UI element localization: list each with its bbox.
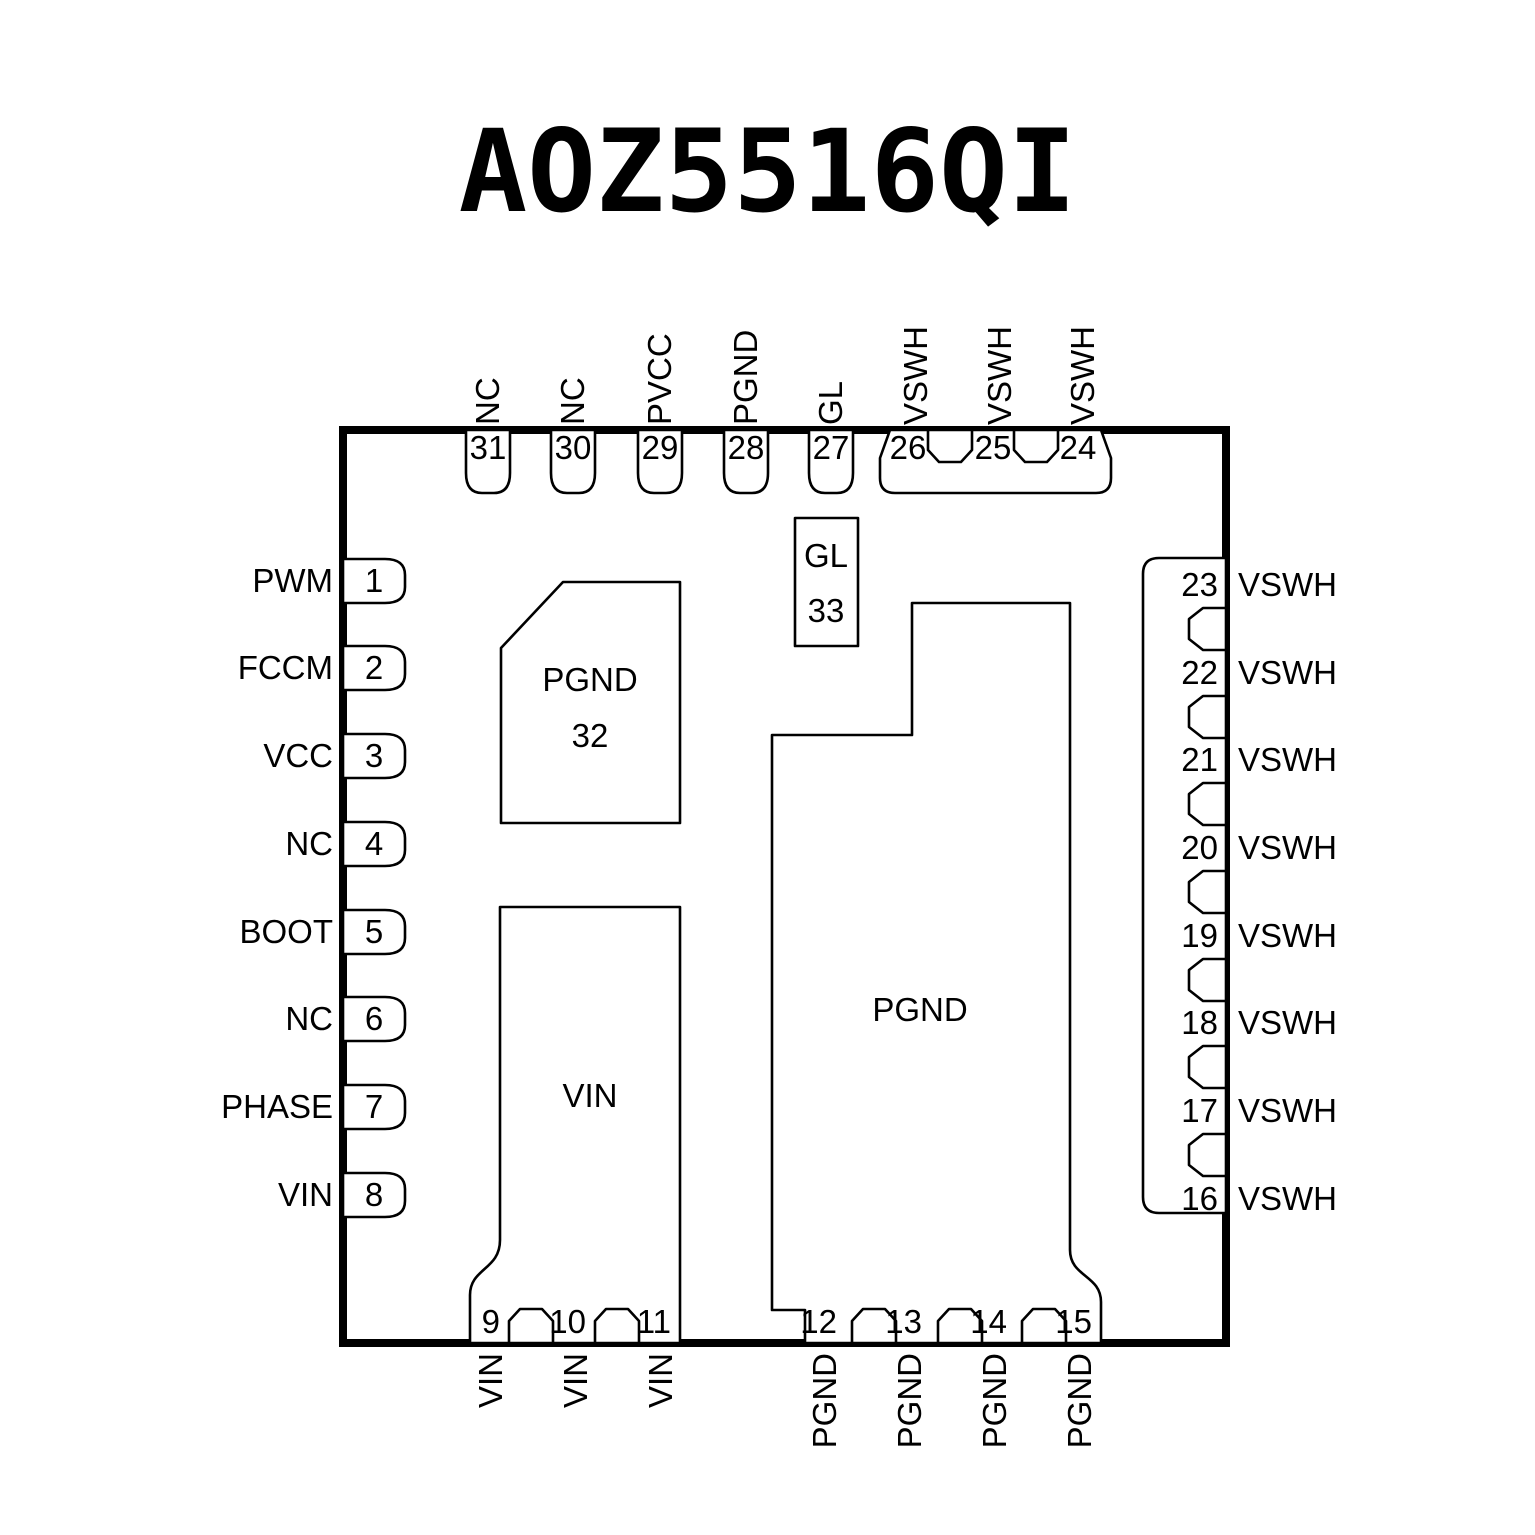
pin-label-6: NC xyxy=(148,998,333,1040)
pin-number-7: 7 xyxy=(343,1086,405,1128)
pin-number-9: 9 xyxy=(430,1301,500,1341)
pgnd-32-number: 32 xyxy=(490,716,690,756)
pin-label-20: VSWH xyxy=(1238,827,1398,869)
pin-number-5: 5 xyxy=(343,911,405,953)
pin-label-22: VSWH xyxy=(1238,652,1398,694)
pin-label-11: VIN xyxy=(645,1353,677,1503)
pin-number-26: 26 xyxy=(878,426,938,470)
pgnd-pad-label: PGND xyxy=(820,990,1020,1030)
vin-pad-label: VIN xyxy=(490,1076,690,1116)
pin-number-10: 10 xyxy=(516,1301,586,1341)
pin-label-1: PWM xyxy=(148,560,333,602)
pin-number-12: 12 xyxy=(767,1301,837,1341)
pin-label-26: VSWH xyxy=(900,275,932,425)
pin-label-14: PGND xyxy=(979,1353,1011,1503)
pgnd-32-pad xyxy=(501,582,680,823)
pin-number-20: 20 xyxy=(1148,827,1218,869)
pin-label-15: PGND xyxy=(1064,1353,1096,1503)
pin-number-4: 4 xyxy=(343,823,405,865)
pin-number-31: 31 xyxy=(458,426,518,470)
pin-label-4: NC xyxy=(148,823,333,865)
pin-label-30: NC xyxy=(557,275,589,425)
pin-label-28: PGND xyxy=(730,275,762,425)
pin-label-12: PGND xyxy=(809,1353,841,1503)
pin-label-18: VSWH xyxy=(1238,1002,1398,1044)
pin-number-17: 17 xyxy=(1148,1090,1218,1132)
pin-number-24: 24 xyxy=(1048,426,1108,470)
pin-label-25: VSWH xyxy=(984,275,1016,425)
pin-label-21: VSWH xyxy=(1238,739,1398,781)
vin-pad xyxy=(470,907,680,1343)
pgnd-32-label: PGND xyxy=(490,660,690,700)
pin-number-25: 25 xyxy=(963,426,1023,470)
pin-number-2: 2 xyxy=(343,647,405,689)
pin-number-15: 15 xyxy=(1022,1301,1092,1341)
right-pin-notch-3 xyxy=(1189,783,1226,825)
pin-label-29: PVCC xyxy=(644,275,676,425)
pin-label-17: VSWH xyxy=(1238,1090,1398,1132)
pin-label-19: VSWH xyxy=(1238,915,1398,957)
pin-number-27: 27 xyxy=(801,426,861,470)
right-pin-notch-2 xyxy=(1189,696,1226,738)
right-pin-notch-4 xyxy=(1189,871,1226,913)
pin-label-7: PHASE xyxy=(148,1086,333,1128)
pin-number-11: 11 xyxy=(601,1301,671,1341)
pin-number-29: 29 xyxy=(630,426,690,470)
pin-number-23: 23 xyxy=(1148,564,1218,606)
pin-label-9: VIN xyxy=(475,1353,507,1503)
pin-label-16: VSWH xyxy=(1238,1178,1398,1220)
page-title: AOZ5516QI xyxy=(0,112,1535,232)
pin-label-8: VIN xyxy=(148,1174,333,1216)
pin-label-2: FCCM xyxy=(148,647,333,689)
right-pin-notch-1 xyxy=(1189,608,1226,650)
right-pin-notch-5 xyxy=(1189,959,1226,1001)
gl-33-label: GL xyxy=(776,536,876,576)
pin-number-18: 18 xyxy=(1148,1002,1218,1044)
right-pin-notch-6 xyxy=(1189,1046,1226,1088)
pin-label-5: BOOT xyxy=(148,911,333,953)
pin-label-10: VIN xyxy=(560,1353,592,1503)
pin-label-27: GL xyxy=(815,275,847,425)
pin-label-13: PGND xyxy=(894,1353,926,1503)
pinout-diagram: AOZ5516QI PWM1FCCM2VCC3NC4BOOT5NC6PHASE7… xyxy=(0,0,1535,1535)
pin-label-3: VCC xyxy=(148,735,333,777)
pin-number-16: 16 xyxy=(1148,1178,1218,1220)
pin-number-8: 8 xyxy=(343,1174,405,1216)
pin-number-30: 30 xyxy=(543,426,603,470)
gl-33-number: 33 xyxy=(776,591,876,631)
pin-label-31: NC xyxy=(472,275,504,425)
pin-number-14: 14 xyxy=(937,1301,1007,1341)
pin-number-1: 1 xyxy=(343,560,405,602)
right-pin-notch-7 xyxy=(1189,1134,1226,1176)
pin-number-28: 28 xyxy=(716,426,776,470)
pin-label-24: VSWH xyxy=(1067,275,1099,425)
pin-label-23: VSWH xyxy=(1238,564,1398,606)
pin-number-6: 6 xyxy=(343,998,405,1040)
pin-number-19: 19 xyxy=(1148,915,1218,957)
pin-number-13: 13 xyxy=(852,1301,922,1341)
pin-number-21: 21 xyxy=(1148,739,1218,781)
pin-number-3: 3 xyxy=(343,735,405,777)
pin-number-22: 22 xyxy=(1148,652,1218,694)
